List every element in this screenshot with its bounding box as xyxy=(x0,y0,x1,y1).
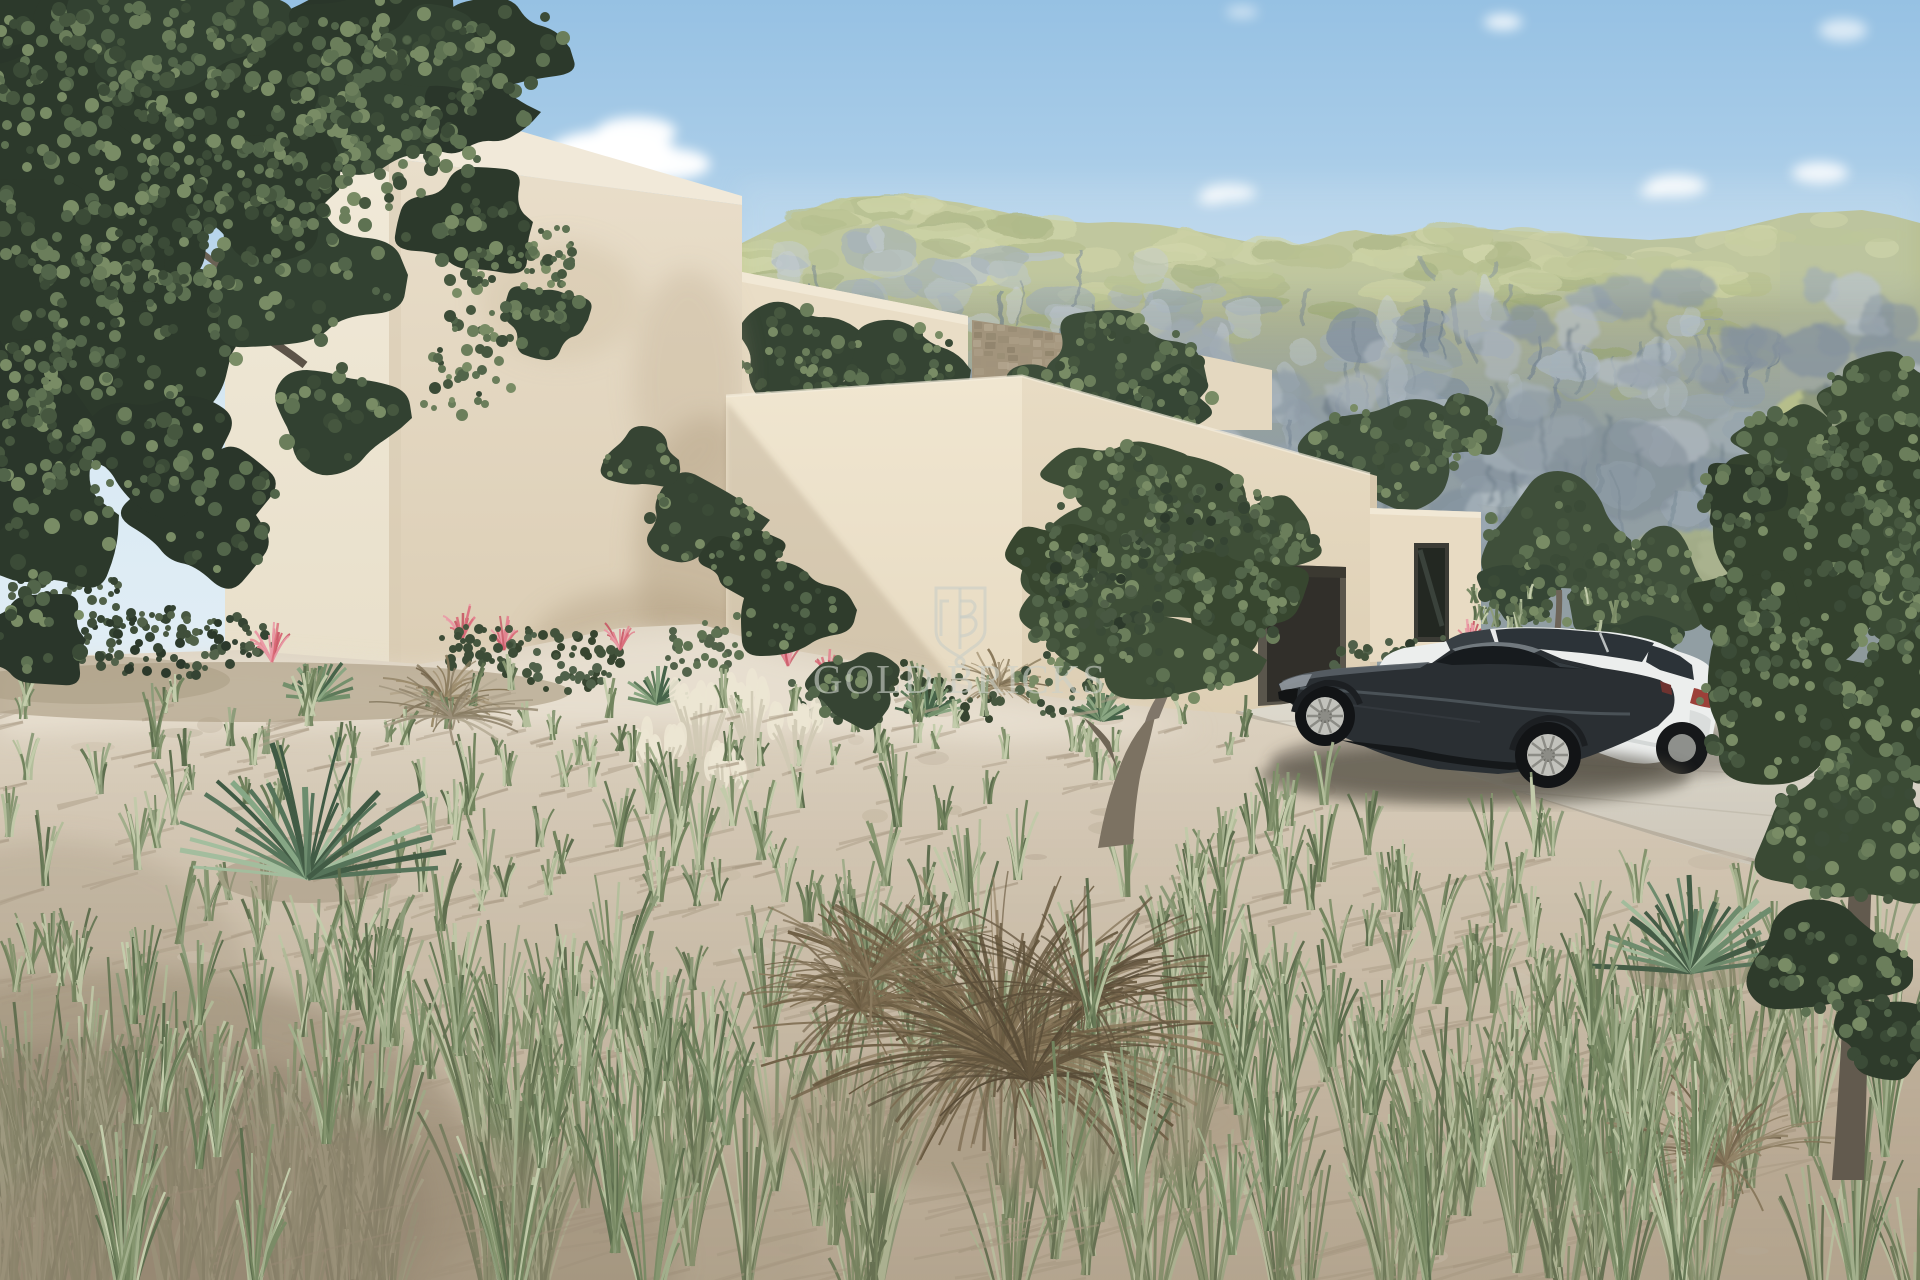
svg-text:GOLD BRICKS: GOLD BRICKS xyxy=(813,656,1107,702)
